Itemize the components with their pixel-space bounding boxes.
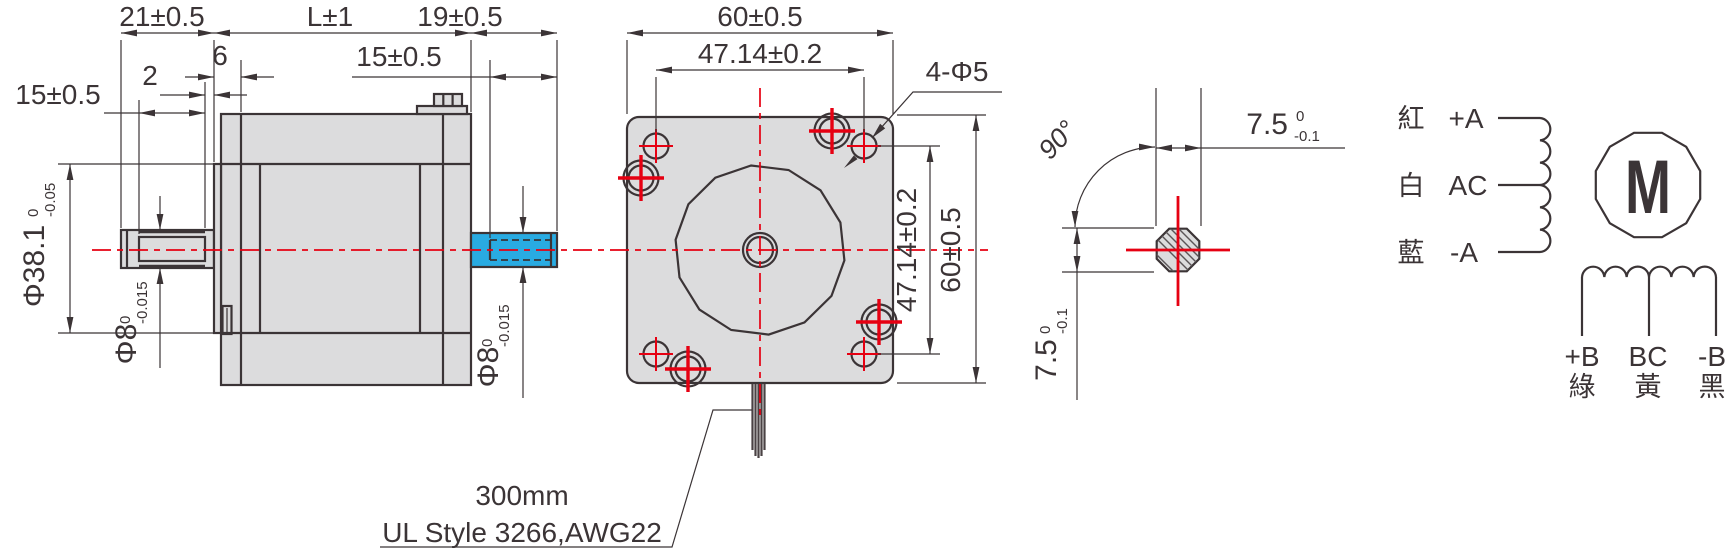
cable-length-note: 300mm <box>475 480 568 511</box>
dim-hole-spacing-horizontal: 47.14±0.2 <box>698 38 822 69</box>
dim-flat-to-face-gap: 2 <box>142 60 158 91</box>
svg-text:47.14±0.2: 47.14±0.2 <box>891 188 922 312</box>
svg-text:-0.1: -0.1 <box>1294 128 1320 145</box>
terminal-bc: BC <box>1629 341 1668 372</box>
svg-text:0: 0 <box>479 339 496 347</box>
dim-front-height: 60±0.5 <box>935 207 966 292</box>
terminal-plus-a: +A <box>1448 103 1483 134</box>
svg-text:Φ38.1: Φ38.1 <box>18 225 51 307</box>
dim-flat-angle: 90° <box>1033 115 1083 165</box>
dim-front-width: 60±0.5 <box>717 1 802 32</box>
svg-text:-0.015: -0.015 <box>496 304 513 347</box>
wire-color-black: 黑 <box>1699 372 1726 402</box>
terminal-plus-b: +B <box>1564 341 1599 372</box>
wiring-diagram: 紅 +A 白 AC 藍 -A M +B BC -B 綠 黃 黑 <box>1398 103 1727 402</box>
motor-symbol: M <box>1625 145 1671 230</box>
cable-note: 300mm UL Style 3266,AWG22 <box>380 410 752 548</box>
dim-front-shaft-diameter: Φ8 0 -0.015 <box>110 281 151 364</box>
shaft-section-detail: 7.5 0 -0.1 7.5 0 -0.1 90° <box>1030 88 1345 400</box>
wire-color-red: 紅 <box>1398 104 1425 134</box>
svg-text:7.5: 7.5 <box>1246 108 1288 141</box>
wire-color-blue: 藍 <box>1398 238 1425 268</box>
pilot-boss-lip <box>214 164 221 333</box>
dim-flat-width-vertical: 7.5 0 -0.1 <box>1030 308 1071 381</box>
cable-spec-note: UL Style 3266,AWG22 <box>382 517 662 548</box>
wire-color-white: 白 <box>1398 171 1425 201</box>
svg-text:0: 0 <box>117 316 134 324</box>
svg-text:-0.015: -0.015 <box>134 281 151 324</box>
terminal-connector <box>417 94 467 114</box>
dim-front-boss-depth: 6 <box>212 40 228 71</box>
front-shaft <box>121 230 214 268</box>
phase-b-coil <box>1582 267 1716 277</box>
dim-flat-width-horizontal: 7.5 0 -0.1 <box>1246 108 1320 145</box>
terminal-minus-a: -A <box>1450 237 1478 268</box>
angle-arc <box>1075 147 1155 227</box>
dim-rear-shaft-flat-length: 15±0.5 <box>356 41 441 72</box>
wire-color-yellow: 黃 <box>1635 372 1662 402</box>
phase-a-coil <box>1540 118 1550 252</box>
drawing-canvas: 21±0.5 L±1 19±0.5 6 15±0.5 2 15±0.5 Φ38.… <box>0 0 1728 552</box>
svg-text:0: 0 <box>1296 108 1304 125</box>
svg-text:0: 0 <box>1037 326 1054 334</box>
svg-text:90°: 90° <box>1033 115 1083 165</box>
engineering-drawing: 21±0.5 L±1 19±0.5 6 15±0.5 2 15±0.5 Φ38.… <box>0 0 1728 552</box>
svg-text:7.5: 7.5 <box>1030 339 1063 381</box>
dim-rear-shaft-diameter: Φ8 0 -0.015 <box>472 304 513 387</box>
terminal-minus-b: -B <box>1698 341 1726 372</box>
svg-text:Φ8: Φ8 <box>110 324 143 365</box>
dim-front-shaft-flat-length: 15±0.5 <box>15 79 100 110</box>
svg-text:-0.1: -0.1 <box>1054 308 1071 334</box>
dim-body-length: L±1 <box>307 1 354 32</box>
terminal-ac: AC <box>1449 170 1488 201</box>
svg-text:-0.05: -0.05 <box>42 183 59 217</box>
dim-shaft-front-length: 21±0.5 <box>119 1 204 32</box>
svg-text:60±0.5: 60±0.5 <box>935 207 966 292</box>
dim-shaft-rear-length: 19±0.5 <box>417 1 502 32</box>
dim-mounting-holes: 4-Φ5 <box>926 56 989 87</box>
dim-hole-spacing-vertical: 47.14±0.2 <box>891 188 922 312</box>
svg-text:0: 0 <box>25 209 42 217</box>
dim-pilot-diameter: Φ38.1 0 -0.05 <box>18 183 59 307</box>
cable-bundle <box>753 384 765 458</box>
svg-text:Φ8: Φ8 <box>472 347 505 388</box>
wire-color-green: 綠 <box>1569 372 1596 402</box>
